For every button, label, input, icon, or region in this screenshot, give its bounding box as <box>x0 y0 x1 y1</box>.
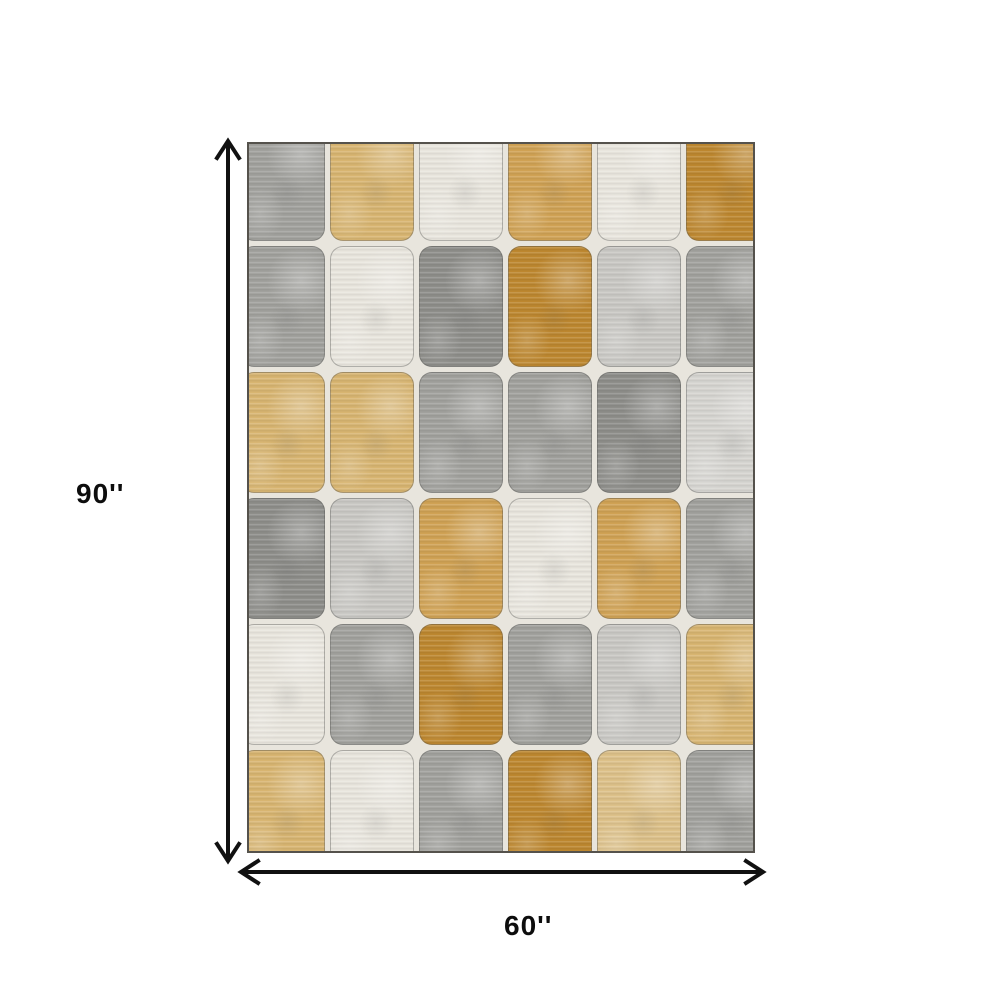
rug-tile-r4c5 <box>597 498 681 619</box>
rug-tile-r3c6 <box>686 372 755 493</box>
product-dimension-diagram: 90'' 60'' <box>0 0 1000 1000</box>
height-dimension-arrow <box>213 136 243 866</box>
rug-tile-r4c4 <box>508 498 592 619</box>
rug-tile-r1c5 <box>597 142 681 241</box>
rug-tile-r1c2 <box>330 142 414 241</box>
rug-tile-r5c5 <box>597 624 681 745</box>
rug-tile-r2c1 <box>247 246 325 367</box>
height-dimension-label: 90'' <box>76 478 124 510</box>
rug-tile-r6c1 <box>247 750 325 853</box>
rug-tile-r6c4 <box>508 750 592 853</box>
rug-tile-r3c1 <box>247 372 325 493</box>
rug-tile-r1c6 <box>686 142 755 241</box>
rug-tile-r3c4 <box>508 372 592 493</box>
rug-tile-r3c5 <box>597 372 681 493</box>
rug-tile-r4c3 <box>419 498 503 619</box>
rug-tile-r3c3 <box>419 372 503 493</box>
rug-tile-r2c3 <box>419 246 503 367</box>
rug-tile-r4c1 <box>247 498 325 619</box>
rug-tile-r3c2 <box>330 372 414 493</box>
rug-image <box>247 142 755 853</box>
rug-tile-r2c4 <box>508 246 592 367</box>
rug-tile-r6c5 <box>597 750 681 853</box>
rug-tile-r5c3 <box>419 624 503 745</box>
rug-tile-r4c2 <box>330 498 414 619</box>
rug-tile-r1c4 <box>508 142 592 241</box>
rug-tile-r2c6 <box>686 246 755 367</box>
rug-tile-r5c2 <box>330 624 414 745</box>
rug-tile-grid <box>247 142 755 853</box>
rug-tile-r5c4 <box>508 624 592 745</box>
rug-tile-r5c6 <box>686 624 755 745</box>
rug-tile-r4c6 <box>686 498 755 619</box>
rug-tile-r2c5 <box>597 246 681 367</box>
rug-tile-r2c2 <box>330 246 414 367</box>
rug-tile-r6c6 <box>686 750 755 853</box>
rug-tile-r1c3 <box>419 142 503 241</box>
rug-tile-r5c1 <box>247 624 325 745</box>
rug-tile-r1c1 <box>247 142 325 241</box>
width-dimension-arrow <box>236 857 768 887</box>
width-dimension-label: 60'' <box>504 910 552 942</box>
rug-tile-r6c3 <box>419 750 503 853</box>
rug-tile-r6c2 <box>330 750 414 853</box>
